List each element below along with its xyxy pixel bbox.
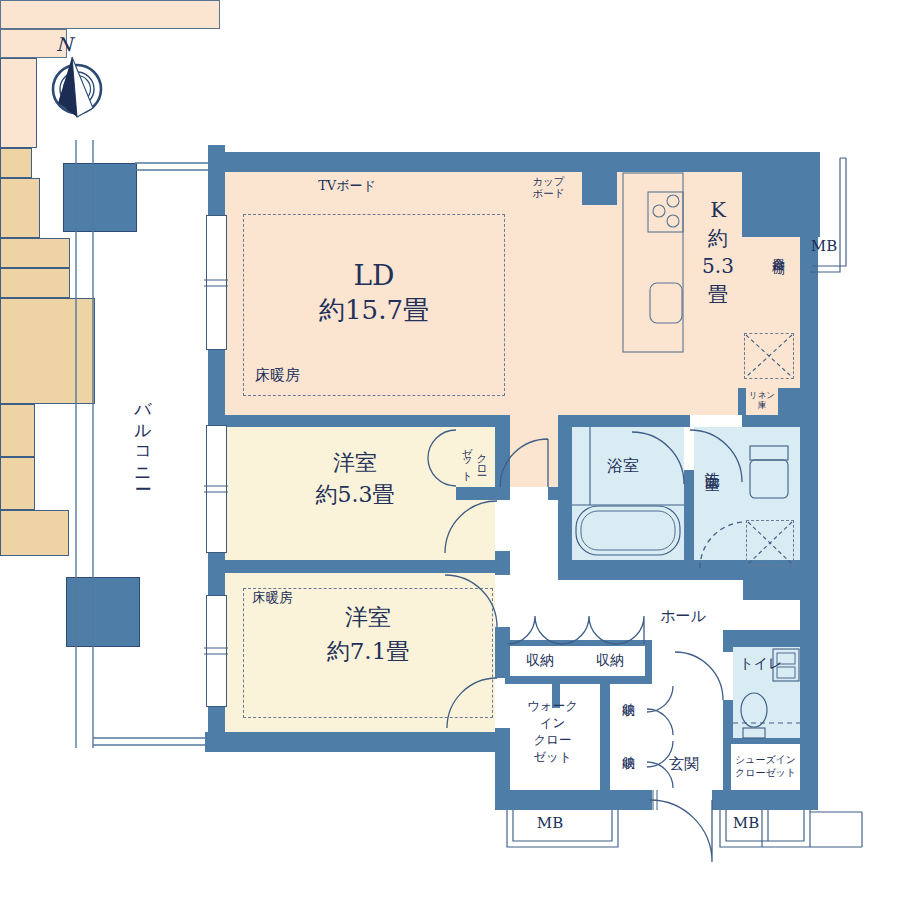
bedroom1-balcony-window bbox=[206, 425, 227, 553]
wall-kitchen-stub bbox=[582, 172, 617, 205]
sic-line1: シューズイン bbox=[735, 754, 796, 765]
linen-line2: 庫 bbox=[758, 400, 767, 410]
linen-cabinet bbox=[0, 148, 32, 178]
wall-toilet-left-b bbox=[723, 700, 733, 738]
wall-right bbox=[800, 237, 818, 810]
dish-shelf bbox=[0, 58, 37, 148]
washroom-label: 洗面室 bbox=[703, 460, 720, 466]
cupboard-line1: カップ bbox=[532, 175, 564, 187]
wall-bedroom-divider bbox=[225, 560, 510, 573]
wic-line1: ウォーク bbox=[527, 698, 578, 713]
ld-alcove-floor bbox=[510, 415, 558, 487]
hall-label: ホール bbox=[652, 608, 714, 625]
bedroom2-name-label: 洋室 bbox=[243, 604, 493, 630]
wic-door-opening bbox=[495, 678, 505, 728]
storage-cell-1 bbox=[0, 238, 70, 268]
entrance-door-opening bbox=[652, 790, 712, 810]
wall-bath-partition bbox=[684, 470, 694, 560]
balcony-pillar-bottom bbox=[66, 577, 140, 647]
tv-board-label: TVボード bbox=[237, 179, 457, 194]
wic-line4: ゼット bbox=[533, 749, 571, 764]
wall-ld-bedroom bbox=[208, 415, 510, 427]
cupboard-label: カップ ボード bbox=[515, 175, 582, 199]
wic-line3: クロー bbox=[533, 732, 571, 747]
shoes-in-closet-box bbox=[0, 510, 69, 556]
wall-hall-stub bbox=[743, 580, 800, 600]
entrance-label: 玄関 bbox=[662, 756, 706, 773]
toilet-door-opening bbox=[723, 652, 733, 700]
wall-toilet-sic bbox=[723, 738, 818, 744]
wall-oshiire-wic bbox=[505, 676, 645, 684]
bedroom1-name-label: 洋室 bbox=[240, 450, 470, 475]
wall-linen-right bbox=[778, 388, 800, 418]
refrigerator-space bbox=[744, 333, 794, 379]
storage-cell-2 bbox=[0, 268, 70, 298]
ld-size-label: 約15.7畳 bbox=[243, 296, 505, 326]
wall-sic-left bbox=[723, 744, 731, 790]
kitchen-size: 5.3 bbox=[702, 255, 734, 278]
ld-balcony-window bbox=[206, 215, 227, 350]
wic-line2: イン bbox=[540, 715, 566, 730]
toilet-label: トイレ bbox=[733, 655, 789, 671]
wall-bedroom-bottom bbox=[205, 732, 510, 752]
ld-name-label: LD bbox=[243, 260, 505, 292]
dish-shelf-label: 食器棚 bbox=[770, 247, 785, 253]
wall-wic-column-divider bbox=[600, 684, 610, 790]
kitchen-approx: 約 bbox=[708, 227, 728, 250]
kitchen-unit: 畳 bbox=[708, 283, 728, 306]
closet-label: クロー ゼット bbox=[460, 432, 489, 484]
linen-label: リネン 庫 bbox=[746, 391, 778, 411]
wall-oshiire-top bbox=[505, 640, 645, 646]
mb-top-label: MB bbox=[806, 238, 842, 255]
sic-line2: クローゼット bbox=[735, 767, 796, 778]
closet-line1: クロー bbox=[475, 432, 490, 484]
kitchen-k: K bbox=[710, 198, 726, 222]
sic-label: シューズイン クローゼット bbox=[731, 753, 800, 779]
mb-bottom-left-label: MB bbox=[528, 815, 572, 832]
mb-bottom-right-label: MB bbox=[726, 815, 766, 832]
washer-space bbox=[746, 520, 794, 566]
compass-north-label: N bbox=[56, 34, 73, 56]
ld-floor-heating-label: 床暖房 bbox=[255, 367, 300, 384]
wall-bath-left bbox=[558, 415, 572, 580]
bedroom1-door-opening bbox=[495, 501, 510, 551]
bedroom1-size-label: 約5.3畳 bbox=[240, 482, 470, 507]
storage-cell-4 bbox=[0, 457, 35, 510]
closet-line2: ゼット bbox=[460, 432, 475, 484]
bathroom-label: 浴室 bbox=[588, 457, 658, 475]
wall-toilet-top bbox=[723, 630, 818, 647]
storage-cell-3 bbox=[0, 404, 35, 457]
wall-linen-left bbox=[738, 388, 746, 418]
wall-bath-top bbox=[558, 415, 800, 427]
floor-plan: N バルコニー TVボード カップ ボード LD 約15.7畳 床暖房 K 約 … bbox=[0, 0, 920, 920]
bedroom2-balcony-window bbox=[206, 595, 227, 707]
wic-label: ウォーク イン クロー ゼット bbox=[505, 698, 600, 766]
balcony-pillar-top bbox=[63, 163, 137, 232]
wall-oshiire-east bbox=[645, 640, 652, 684]
bedroom2-door-opening bbox=[495, 575, 510, 627]
cupboard-line2: ボード bbox=[533, 187, 565, 199]
compass-icon bbox=[53, 57, 101, 117]
linen-line1: リネン bbox=[749, 390, 775, 400]
wall-corner-ne bbox=[742, 172, 820, 237]
balcony-label: バルコニー bbox=[133, 390, 153, 482]
bathroom-floor bbox=[572, 427, 684, 560]
tv-board bbox=[0, 0, 220, 29]
storage1-label: 収納 bbox=[505, 652, 575, 668]
storage2-label: 収納 bbox=[575, 652, 645, 668]
walk-in-closet-box bbox=[0, 298, 95, 404]
wall-top bbox=[208, 152, 820, 172]
closet-box bbox=[0, 178, 40, 238]
washroom-door-opening bbox=[690, 415, 742, 427]
kitchen-label: K 約 5.3 畳 bbox=[697, 198, 739, 306]
bedroom2-size-label: 約7.1畳 bbox=[243, 638, 493, 664]
wall-hall-west-a bbox=[495, 415, 510, 487]
